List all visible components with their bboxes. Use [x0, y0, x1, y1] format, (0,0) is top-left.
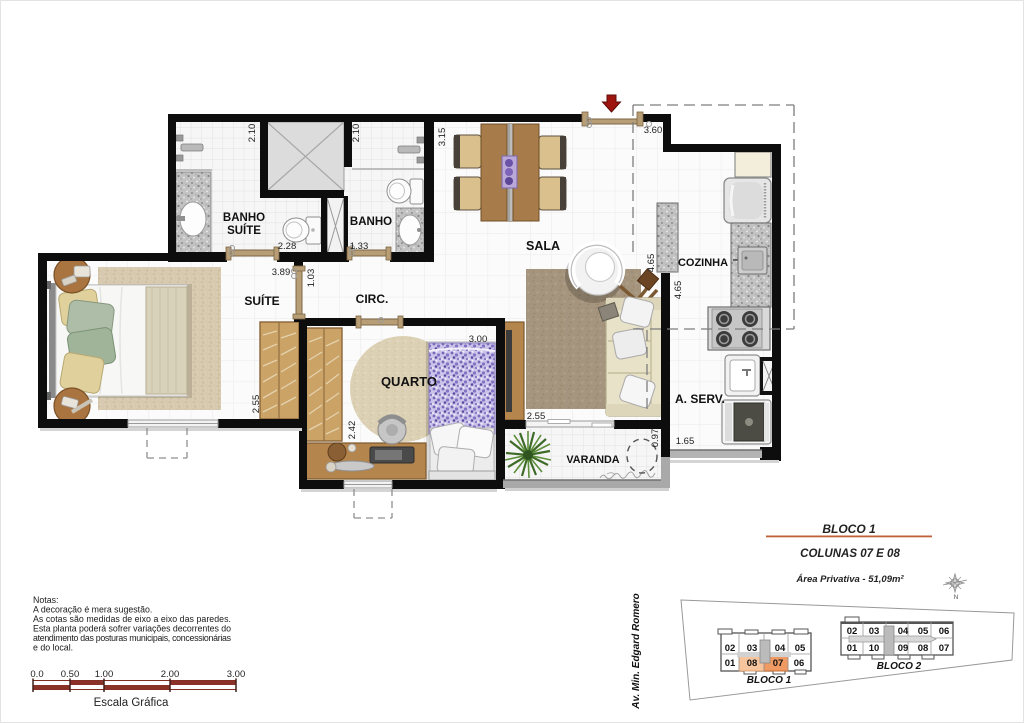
svg-text:SUÍTE: SUÍTE [227, 224, 261, 237]
svg-text:Notas:: Notas: [33, 595, 58, 605]
svg-text:10: 10 [869, 643, 880, 654]
svg-text:4.65: 4.65 [646, 254, 657, 273]
svg-text:07: 07 [773, 658, 784, 669]
svg-text:08: 08 [747, 658, 758, 669]
svg-text:03: 03 [869, 626, 880, 637]
svg-text:2.55: 2.55 [251, 395, 262, 414]
svg-text:01: 01 [725, 658, 736, 669]
svg-text:08: 08 [918, 643, 929, 654]
svg-text:QUARTO: QUARTO [381, 374, 437, 389]
svg-text:04: 04 [775, 643, 786, 654]
svg-text:N: N [954, 594, 959, 601]
svg-text:A decoração é mera sugestão.: A decoração é mera sugestão. [33, 605, 152, 615]
svg-text:0.97: 0.97 [650, 429, 661, 448]
svg-text:2.55: 2.55 [527, 411, 546, 422]
svg-text:09: 09 [898, 643, 909, 654]
svg-text:05: 05 [918, 626, 929, 637]
svg-text:07: 07 [939, 643, 950, 654]
svg-text:3.00: 3.00 [469, 334, 488, 345]
svg-text:Área Privativa - 51,09m²: Área Privativa - 51,09m² [795, 574, 904, 585]
svg-text:3.89: 3.89 [272, 267, 291, 278]
svg-text:01: 01 [847, 643, 858, 654]
svg-text:1.00: 1.00 [95, 669, 114, 680]
svg-text:2.00: 2.00 [161, 669, 180, 680]
svg-text:04: 04 [898, 626, 909, 637]
svg-text:3.60: 3.60 [644, 125, 663, 136]
svg-text:Escala Gráfica: Escala Gráfica [94, 697, 169, 709]
svg-text:0.0: 0.0 [30, 669, 43, 680]
svg-text:1.65: 1.65 [676, 436, 695, 447]
svg-text:BLOCO 2: BLOCO 2 [877, 661, 922, 672]
svg-text:COLUNAS 07 E 08: COLUNAS 07 E 08 [800, 548, 900, 560]
svg-text:2.42: 2.42 [347, 421, 358, 440]
svg-text:2.28: 2.28 [278, 241, 297, 252]
svg-text:2.10: 2.10 [247, 124, 258, 143]
svg-text:06: 06 [794, 658, 805, 669]
svg-text:CIRC.: CIRC. [356, 292, 389, 306]
svg-text:As cotas são medidas de eixo a: As cotas são medidas de eixo a eixo das … [33, 614, 231, 624]
svg-text:06: 06 [939, 626, 950, 637]
svg-text:VARANDA: VARANDA [566, 454, 619, 466]
svg-text:1.03: 1.03 [306, 269, 317, 288]
svg-text:3.15: 3.15 [437, 128, 448, 147]
svg-text:A. SERV.: A. SERV. [675, 392, 725, 406]
svg-text:3.00: 3.00 [227, 669, 246, 680]
svg-text:Av. Min. Edgard Romero: Av. Min. Edgard Romero [631, 593, 642, 710]
svg-text:e do local.: e do local. [33, 643, 73, 653]
svg-text:SALA: SALA [526, 239, 560, 253]
svg-text:BANHO: BANHO [223, 212, 265, 224]
svg-text:COZINHA: COZINHA [678, 257, 728, 269]
svg-text:2.10: 2.10 [351, 124, 362, 143]
svg-text:BANHO: BANHO [350, 216, 392, 228]
svg-text:1.33: 1.33 [350, 241, 369, 252]
svg-text:BLOCO 1: BLOCO 1 [747, 675, 792, 686]
svg-text:atendimento das posturas munic: atendimento das posturas municipais, con… [33, 633, 232, 643]
svg-text:02: 02 [847, 626, 858, 637]
svg-text:03: 03 [747, 643, 758, 654]
svg-text:05: 05 [795, 643, 806, 654]
svg-text:Esta planta poderá sofrer vari: Esta planta poderá sofrer variações deco… [33, 624, 231, 634]
svg-text:4.65: 4.65 [673, 281, 684, 300]
svg-text:SUÍTE: SUÍTE [244, 293, 279, 308]
svg-text:0.50: 0.50 [61, 669, 80, 680]
svg-text:02: 02 [725, 643, 736, 654]
svg-text:BLOCO 1: BLOCO 1 [822, 522, 876, 536]
